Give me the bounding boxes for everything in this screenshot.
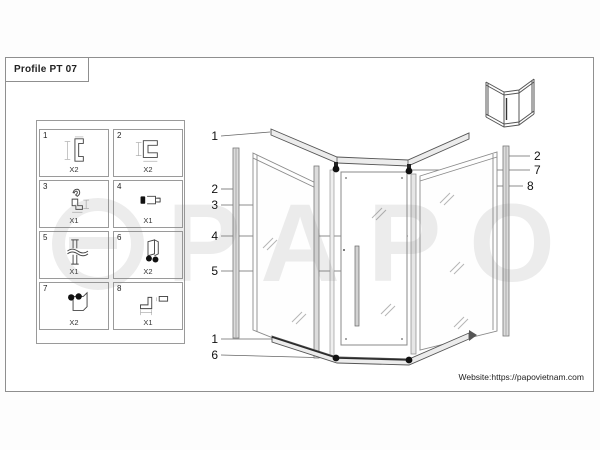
- bottom-roller-left: [333, 355, 340, 362]
- part-qty: X1: [114, 318, 182, 327]
- callout-5: 5: [204, 264, 218, 278]
- fixed-panel-profile: [314, 166, 319, 358]
- c-profile-icon: [116, 136, 180, 164]
- callout-1-top: 1: [204, 129, 218, 143]
- right-glass-panel: [420, 152, 497, 350]
- assembly-diagram: [200, 118, 548, 380]
- part-cell-1: 1 X2: [39, 129, 109, 177]
- clamp-fitting-icon: [116, 187, 180, 215]
- part-cell-2: 2 X2: [113, 129, 183, 177]
- top-roller-left: [333, 162, 340, 172]
- part-qty: X2: [40, 318, 108, 327]
- part-cell-6: 6 X2: [113, 231, 183, 279]
- callout-1-bottom: 1: [204, 332, 218, 346]
- part-qty: X1: [40, 216, 108, 225]
- wall-profile-left: [233, 148, 239, 338]
- callout-7: 7: [534, 163, 541, 177]
- part-cell-3: 3 X1: [39, 180, 109, 228]
- callout-2-right: 2: [534, 149, 541, 163]
- door-panel: [341, 172, 407, 345]
- wall-channel-profile-icon: [42, 136, 106, 164]
- part-qty: X2: [114, 165, 182, 174]
- l-angle-profile-icon: [116, 289, 180, 317]
- callout-4: 4: [204, 229, 218, 243]
- part-cell-4: 4 X1: [113, 180, 183, 228]
- part-qty: X1: [40, 267, 108, 276]
- top-roller-icon: [42, 289, 106, 317]
- part-cell-8: 8 X1: [113, 282, 183, 330]
- left-glass-panel: [253, 153, 318, 356]
- part-cell-7: 7 X2: [39, 282, 109, 330]
- hook-bracket-icon: [42, 187, 106, 215]
- door-handle: [355, 246, 359, 326]
- enclosure-thumbnail-icon: [480, 64, 542, 130]
- support-bar-icon: [42, 238, 106, 266]
- part-cell-5: 5 X1: [39, 231, 109, 279]
- parts-legend: 1 X2 2 X2 3 X1: [36, 120, 185, 344]
- bottom-roller-icon: [116, 238, 180, 266]
- callout-6: 6: [204, 348, 218, 362]
- bottom-roller-right: [406, 357, 413, 364]
- website-url: Website:https://papovietnam.com: [458, 372, 584, 382]
- callout-8: 8: [527, 179, 534, 193]
- door-track-stile-right: [411, 174, 416, 354]
- wall-profile-right: [503, 146, 509, 336]
- top-rail: [271, 129, 469, 166]
- part-qty: X2: [114, 267, 182, 276]
- door-track-stile-left: [330, 170, 334, 360]
- page-title: Profile PT 07: [5, 57, 89, 82]
- callout-3: 3: [204, 198, 218, 212]
- part-qty: X1: [114, 216, 182, 225]
- part-qty: X2: [40, 165, 108, 174]
- drawing-sheet: Profile PT 07 1 X2 2 X2 3: [0, 0, 600, 450]
- callout-2-left: 2: [204, 182, 218, 196]
